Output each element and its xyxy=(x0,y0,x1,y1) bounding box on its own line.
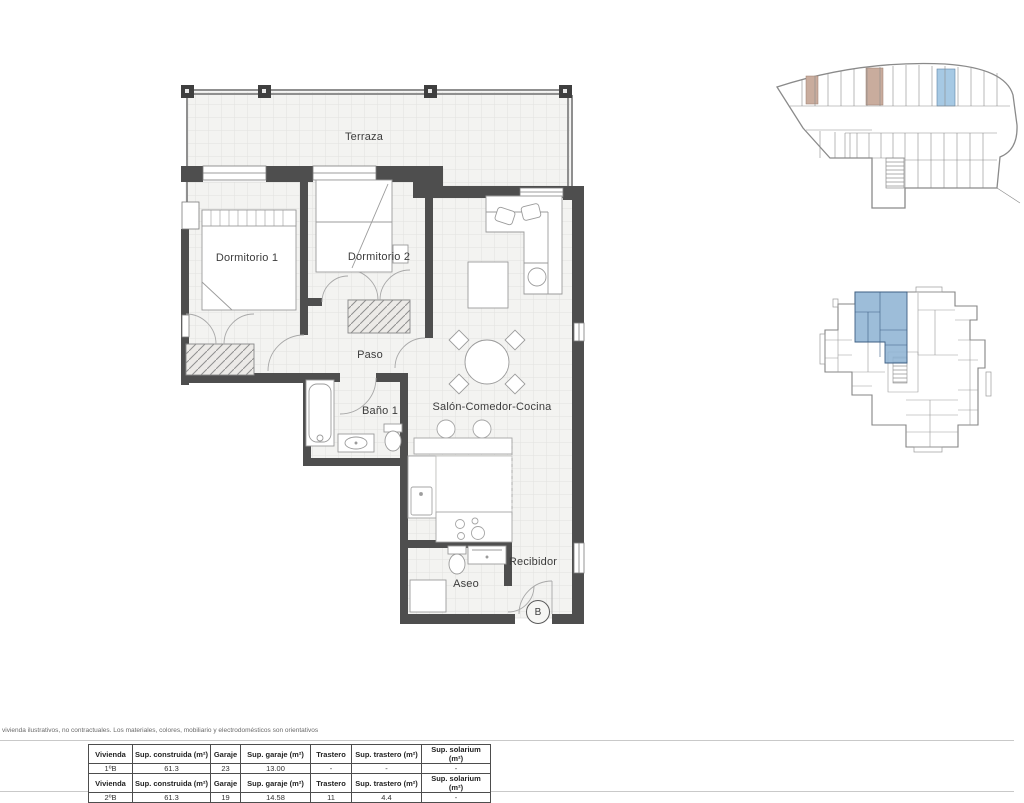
data-cell: - xyxy=(422,764,491,774)
data-cell: 11 xyxy=(311,793,352,803)
data-cell: 19 xyxy=(211,793,241,803)
room-label-terraza: Terraza xyxy=(345,131,383,143)
room-label-salon-comedor-cocina: Salón-Comedor-Cocina xyxy=(433,401,552,413)
data-cell: 61.3 xyxy=(133,793,211,803)
data-cell: 4.4 xyxy=(352,793,422,803)
data-cell: - xyxy=(311,764,352,774)
unit-b-marker: B xyxy=(526,600,550,624)
header-cell: Vivienda xyxy=(89,745,133,764)
room-label-dormitorio-2: Dormitorio 2 xyxy=(348,251,410,263)
data-cell: 2ºB xyxy=(89,793,133,803)
header-cell: Sup. construida (m²) xyxy=(133,745,211,764)
footer-divider-top xyxy=(0,740,1014,741)
room-label-recibidor: Recibidor xyxy=(509,556,557,568)
room-label-bano-1: Baño 1 xyxy=(362,405,398,417)
garage-key-plan xyxy=(777,63,1020,208)
data-cell: - xyxy=(352,764,422,774)
header-cell: Sup. solarium (m²) xyxy=(422,774,491,793)
floor-plan-page: { "floor_plan": { "rooms": [ {"id": "ter… xyxy=(0,0,1024,800)
surface-table-2b: Vivienda Sup. construida (m²) Garaje Sup… xyxy=(88,773,491,803)
garage-stairs xyxy=(886,158,904,188)
header-cell: Trastero xyxy=(311,745,352,764)
room-label-dormitorio-1: Dormitorio 1 xyxy=(216,252,278,264)
room-label-aseo: Aseo xyxy=(453,578,479,590)
header-cell: Trastero xyxy=(311,774,352,793)
header-cell: Vivienda xyxy=(89,774,133,793)
header-cell: Sup. construida (m²) xyxy=(133,774,211,793)
table-row: 2ºB 61.3 19 14.58 11 4.4 - xyxy=(89,793,491,803)
garage-highlighted-space xyxy=(937,69,955,106)
header-cell: Sup. solarium (m²) xyxy=(422,745,491,764)
disclaimer-text: vivienda ilustrativos, no contractuales.… xyxy=(2,727,318,734)
header-cell: Sup. trastero (m²) xyxy=(352,745,422,764)
data-cell: 61.3 xyxy=(133,764,211,774)
header-cell: Sup. trastero (m²) xyxy=(352,774,422,793)
table-row: 1ºB 61.3 23 13.00 - - - xyxy=(89,764,491,774)
surface-tables: Vivienda Sup. construida (m²) Garaje Sup… xyxy=(88,744,491,803)
surface-table-1b: Vivienda Sup. construida (m²) Garaje Sup… xyxy=(88,744,491,774)
header-cell: Sup. garaje (m²) xyxy=(241,745,311,764)
coffee-table xyxy=(468,262,508,308)
plans-canvas xyxy=(0,0,1024,800)
table-header-row: Vivienda Sup. construida (m²) Garaje Sup… xyxy=(89,745,491,764)
data-cell: 14.58 xyxy=(241,793,311,803)
data-cell: 23 xyxy=(211,764,241,774)
data-cell: - xyxy=(422,793,491,803)
header-cell: Sup. garaje (m²) xyxy=(241,774,311,793)
room-label-paso: Paso xyxy=(357,349,383,361)
table-header-row: Vivienda Sup. construida (m²) Garaje Sup… xyxy=(89,774,491,793)
garage-storage-space xyxy=(806,76,818,104)
data-cell: 13.00 xyxy=(241,764,311,774)
header-cell: Garaje xyxy=(211,745,241,764)
building-key-plan xyxy=(820,287,991,452)
header-cell: Garaje xyxy=(211,774,241,793)
data-cell: 1ºB xyxy=(89,764,133,774)
garage-storage-space-2 xyxy=(866,68,883,105)
